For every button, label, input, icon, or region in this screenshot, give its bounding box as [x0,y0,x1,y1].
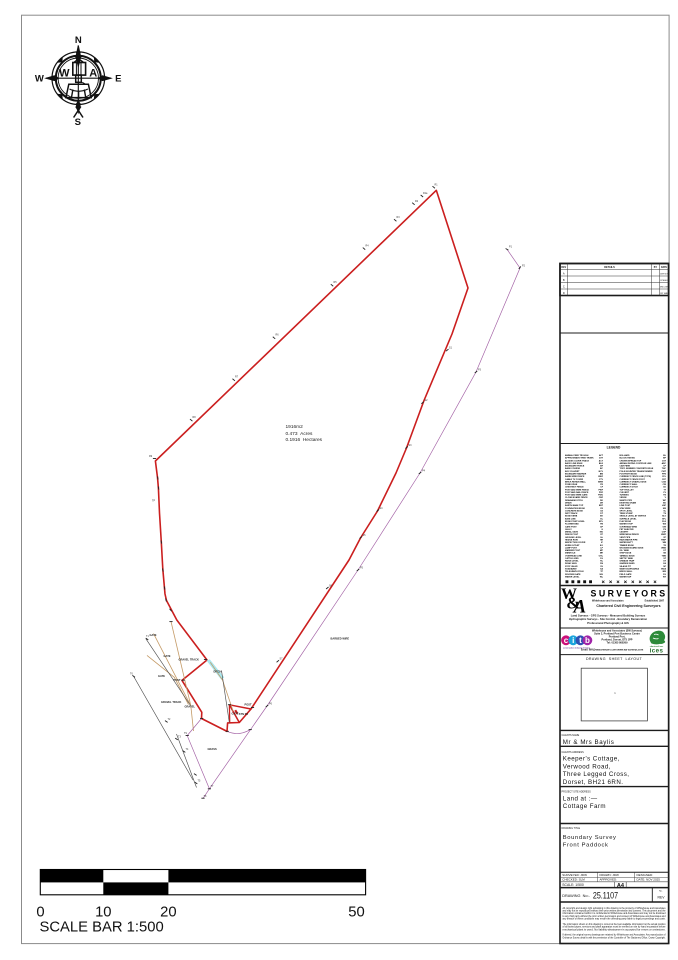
svg-text:DRAIN: DRAIN [565,502,572,505]
svg-text:POST AND WIRE GATE: POST AND WIRE GATE [565,494,588,497]
svg-text:CABLE TV COVER: CABLE TV COVER [565,478,584,481]
svg-text:26TH NOV: 26TH NOV [660,273,669,275]
svg-text:S3: S3 [409,444,413,447]
svg-text:Three Legged Cross,: Three Legged Cross, [563,771,630,778]
svg-text:mechanical plant is used. No l: mechanical plant is used. No liability w… [563,928,666,931]
svg-text:POST AND WIRE FENCE: POST AND WIRE FENCE [565,488,590,491]
svg-text:WASTE PIPE: WASTE PIPE [620,499,633,502]
svg-text:OIL TANK: OIL TANK [620,549,630,552]
svg-text:T9: T9 [184,732,187,735]
svg-text:POST AND RAIL FENCE: POST AND RAIL FENCE [565,491,589,494]
svg-text:AERIAL RATING CONTOUR LINE: AERIAL RATING CONTOUR LINE [620,462,653,465]
svg-text:Keeper's Cottage,: Keeper's Cottage, [563,756,620,763]
svg-text:and may not be reproduced with: and may not be reproduced without their … [563,910,667,913]
svg-text:C: C [563,284,565,288]
svg-text:ANIMAL FEED TROUGH: ANIMAL FEED TROUGH [565,454,589,457]
svg-text:ARC: ARC [662,462,667,465]
svg-text:GRAVEL: GRAVEL [185,705,196,709]
svg-text:FIELD GATE: FIELD GATE [620,573,633,576]
svg-text:R2: R2 [415,200,419,203]
svg-text:LEGEND: LEGEND [607,446,621,450]
svg-text:GATE: GATE [164,654,171,658]
svg-text:GRAVEL TRACK: GRAVEL TRACK [161,700,182,704]
svg-text:CHECKED: SLM: CHECKED: SLM [562,878,585,882]
svg-text:S5: S5 [363,534,367,537]
svg-text:SINGLE LEVEL AT VERTEX: SINGLE LEVEL AT VERTEX [620,515,647,518]
svg-text:25.1107: 25.1107 [593,890,618,900]
svg-text:WATER BUTT: WATER BUTT [620,541,634,544]
svg-text:DRAINAGE DITCH: DRAINAGE DITCH [565,499,583,502]
svg-text:EARTH BANK TOP: EARTH BANK TOP [565,504,584,507]
svg-text:P3: P3 [478,369,482,372]
svg-text:DITCH: DITCH [214,670,222,674]
svg-text:DRAWING SHEET LAYOUT: DRAWING SHEET LAYOUT [586,657,643,661]
svg-text:R4: R4 [366,245,370,248]
svg-text:DATE: DATE [661,266,668,269]
svg-text:WT: WT [663,576,667,578]
svg-text:0.1916 Hectares: 0.1916 Hectares [286,437,323,443]
svg-text:BRICK RETAIN WALL: BRICK RETAIN WALL [565,480,587,483]
svg-text:BACK LINE EDGE: BACK LINE EDGE [565,462,583,465]
svg-text:P1: P1 [509,246,513,249]
svg-text:R3: R3 [397,216,401,219]
svg-text:14TH AUG: 14TH AUG [660,279,669,282]
svg-text:GRAVEL TRACK: GRAVEL TRACK [179,658,200,662]
svg-text:Mr & Mrs Baylis: Mr & Mrs Baylis [563,739,615,746]
svg-text:P2: P2 [522,265,526,268]
svg-text:SURVEYED: JDW: SURVEYED: JDW [562,873,587,877]
svg-text:SOAKAWAY: SOAKAWAY [565,568,577,571]
svg-text:to any third party without the: to any third party without the prior wri… [563,915,667,918]
svg-text:APPROXIMATE TREE TRUNK: APPROXIMATE TREE TRUNK [565,457,594,460]
svg-text:R1: R1 [435,184,439,187]
svg-text:Tel: 01305 860269: Tel: 01305 860269 [607,641,629,644]
svg-text:ices: ices [650,647,664,654]
svg-text:DETAILS: DETAILS [604,266,615,269]
svg-text:CATTLE GRID: CATTLE GRID [565,557,579,560]
svg-text:No.: No. [659,890,663,892]
svg-text:3RD JUN: 3RD JUN [660,286,669,288]
svg-text:S1: S1 [449,347,453,350]
svg-text:POST: POST [174,678,181,682]
svg-text:PROJECT SITE ADDRESS: PROJECT SITE ADDRESS [562,791,592,794]
svg-text:SCALE: 1/500: SCALE: 1/500 [562,883,584,887]
svg-text:WOODEN BOARD EDGE: WOODEN BOARD EDGE [620,546,645,549]
svg-text:1: 1 [614,691,616,695]
svg-text:of all buried pipes, services: of all buried pipes, services and plant … [563,926,667,929]
svg-text:GRASS: GRASS [208,747,217,751]
svg-text:R8: R8 [193,416,197,419]
svg-text:ACCESS COVER TRACK: ACCESS COVER TRACK [565,459,590,462]
svg-text:CLOSE BOARD FENCE: CLOSE BOARD FENCE [565,496,588,499]
svg-text:CURRENCY WALL: CURRENCY WALL [620,483,639,486]
svg-text:Land at :—: Land at :— [563,796,598,803]
svg-text:FLAT EDGE: FLAT EDGE [620,520,632,523]
svg-text:T2: T2 [168,718,171,721]
svg-text:P6: P6 [269,703,273,706]
svg-text:R9: R9 [149,455,153,458]
svg-text:P4: P4 [422,470,426,473]
svg-text:OVERHEAD LINE: OVERHEAD LINE [565,554,582,557]
svg-text:BARB WIRE FENCE: BARB WIRE FENCE [565,475,585,478]
svg-text:BLOCK PAVING: BLOCK PAVING [620,457,636,460]
svg-text:any breach of these conditions: any breach of these conditions may rende… [563,918,666,921]
svg-text:A: A [563,271,565,275]
svg-text:TELEGRAPH POLE: TELEGRAPH POLE [565,570,584,573]
svg-text:DRAWING TITLE: DRAWING TITLE [562,827,581,830]
svg-text:Cottage Farm: Cottage Farm [563,803,606,810]
svg-text:BASE COURSE: BASE COURSE [565,467,581,470]
svg-text:WL: WL [600,576,604,578]
svg-text:D: D [563,291,565,295]
svg-text:FOUNDATION EDGE: FOUNDATION EDGE [565,507,585,510]
svg-text:P5: P5 [360,567,364,570]
svg-text:c: c [564,636,569,645]
svg-text:BY: BY [654,267,658,269]
svg-text:i: i [572,636,574,645]
svg-text:T6: T6 [130,673,133,676]
svg-text:50: 50 [348,905,364,921]
svg-text:EAVE LINE: EAVE LINE [565,517,576,520]
svg-text:All copyright and design right: All copyright and design right subsistin… [563,907,667,910]
svg-text:BOUNDARY MARKER: BOUNDARY MARKER [565,472,587,475]
svg-text:LAMP POST: LAMP POST [565,546,578,549]
svg-text:T8: T8 [204,795,207,798]
svg-text:S: S [75,117,81,128]
svg-text:STN R2: STN R2 [239,712,249,716]
svg-text:AFT: AFT [599,454,604,457]
svg-text:WOODEN GATE: WOODEN GATE [565,573,581,576]
svg-text:DATE: NOV 2025: DATE: NOV 2025 [637,878,661,882]
svg-text:WATER TAP: WATER TAP [620,575,632,578]
svg-text:SCALE BAR 1:500: SCALE BAR 1:500 [40,920,164,936]
svg-text:If altered, the original surve: If altered, the original survey drawings… [563,934,666,937]
svg-text:Front Paddock: Front Paddock [563,842,609,848]
svg-text:CURRENCY GRAVEL EDGE: CURRENCY GRAVEL EDGE [620,480,647,483]
svg-text:POST: POST [245,702,252,706]
svg-text:Dorset, BH21 6RN.: Dorset, BH21 6RN. [563,779,624,786]
svg-text:1916m2: 1916m2 [286,424,304,430]
svg-text:R5: R5 [334,281,338,284]
svg-text:OVERHEAD WIRE: OVERHEAD WIRE [620,525,638,528]
svg-text:DRAWING No:-: DRAWING No:- [562,894,590,898]
svg-text:WDA: WDA [661,568,666,571]
svg-text:ACT: ACT [599,459,604,462]
svg-text:Email: WA@wasurveyors.com: Email: WA@wasurveyors.com www.wa-surveys… [581,649,644,652]
svg-text:MANHOLE: MANHOLE [565,552,576,555]
svg-text:SURVEYORS: SURVEYORS [591,589,668,599]
svg-text:TP: TP [152,500,155,503]
svg-text:T3: T3 [178,736,181,739]
svg-text:Established 1997: Established 1997 [645,600,665,603]
svg-text:Hydrographic Surveys - Site Co: Hydrographic Surveys - Site Control - Bo… [569,617,648,621]
svg-text:R6: R6 [276,334,280,337]
svg-text:B: B [563,278,565,282]
svg-text:DRAWN: JDW: DRAWN: JDW [600,873,620,877]
svg-text:S2: S2 [425,399,429,402]
svg-text:CLIENTS NAME: CLIENTS NAME [562,734,580,737]
svg-text:GATE: GATE [232,712,239,716]
svg-text:MARKER POST: MARKER POST [565,549,581,552]
svg-text:SA: SA [600,568,603,571]
svg-text:A: A [89,68,97,80]
svg-text:APPROVED:: APPROVED: [600,878,618,882]
svg-text:BRICK WALL: BRICK WALL [620,570,634,573]
svg-text:b: b [585,636,590,645]
svg-text:information contained within i: information contained within it is confi… [563,912,667,915]
svg-text:FOOTPATH EDGE: FOOTPATH EDGE [620,472,638,475]
svg-text:1ST MAY: 1ST MAY [660,292,669,295]
svg-text:ROAD SIGN: ROAD SIGN [565,562,577,565]
svg-text:STAY WIRE: STAY WIRE [620,507,632,510]
svg-text:STOP VALVE: STOP VALVE [565,565,578,568]
svg-text:SEPTIC TANK: SEPTIC TANK [620,557,634,560]
svg-text:Whitehouse and Associates: Whitehouse and Associates [592,600,624,603]
svg-text:10: 10 [95,905,111,921]
svg-text:R1a: R1a [423,192,428,195]
svg-text:EXISTING DRAIN: EXISTING DRAIN [620,502,637,505]
svg-text:GATE POST: GATE POST [565,525,577,528]
svg-text:Ordnance Survey detail is with: Ordnance Survey detail is with the permi… [563,936,666,939]
svg-text:GARDEN SHED: GARDEN SHED [620,562,636,565]
svg-text:S4: S4 [380,507,384,510]
svg-text:0: 0 [36,905,44,921]
svg-text:W: W [59,68,70,80]
svg-text:REV: REV [561,267,566,269]
svg-text:ATT: ATT [599,457,604,460]
svg-text:T5: T5 [198,780,201,783]
svg-text:0.473 Acres: 0.473 Acres [286,431,314,437]
svg-text:Professional Photography & GIS: Professional Photography & GIS [587,621,629,625]
svg-text:The information shown on this: The information shown on this drawing is… [563,923,667,926]
svg-text:GATE: GATE [150,633,157,637]
svg-text:Chartered Civil Engineering Su: Chartered Civil Engineering Surveyors [596,604,660,608]
svg-text:W: W [35,74,44,85]
svg-text:t: t [579,636,582,645]
svg-text:BARBED WIRE: BARBED WIRE [331,637,350,641]
svg-text:CAR PARK: CAR PARK [620,465,631,468]
svg-text:RAIN WATER PIPE: RAIN WATER PIPE [620,538,639,541]
svg-text:DESIGNED:: DESIGNED: [637,873,654,877]
svg-text:20: 20 [160,905,176,921]
svg-text:GATE: GATE [158,674,165,678]
svg-text:TARMAC EDGE: TARMAC EDGE [620,554,636,557]
svg-text:R7: R7 [235,376,239,379]
svg-text:WASH DOWN AREA: WASH DOWN AREA [620,568,640,571]
svg-text:REV: REV [658,895,666,899]
svg-text:SILAGE PIT: SILAGE PIT [620,565,632,568]
svg-text:POLE MOUNTED TRANSFORMER: POLE MOUNTED TRANSFORMER [620,470,653,473]
svg-text:Boundary Survey: Boundary Survey [563,835,617,841]
svg-text:CLIENTS ADDRESS: CLIENTS ADDRESS [562,751,585,754]
svg-text:DIRT TRACK: DIRT TRACK [565,512,578,515]
svg-text:CROWN SPREAD TOP: CROWN SPREAD TOP [620,459,642,462]
svg-text:E: E [115,74,121,85]
svg-text:METAL GATE: METAL GATE [565,531,579,534]
svg-text:N: N [75,35,82,46]
svg-text:BOUNDARY FENCE: BOUNDARY FENCE [565,465,585,468]
svg-text:WATER STOP: WATER STOP [620,523,634,526]
svg-text:WATER LEVEL: WATER LEVEL [565,575,580,578]
svg-text:SURFACE LEVEL: SURFACE LEVEL [620,517,638,520]
svg-text:Verwood Road,: Verwood Road, [563,763,611,770]
svg-text:BOLLARD: BOLLARD [620,454,631,457]
svg-text:T4: T4 [186,748,189,751]
svg-text:T7: T7 [211,785,214,788]
svg-text:Land Surveys - GPS Surveys: Land Surveys - GPS Surveys - Measured Bu… [571,613,646,617]
svg-text:GREASE TRAP: GREASE TRAP [620,560,635,563]
